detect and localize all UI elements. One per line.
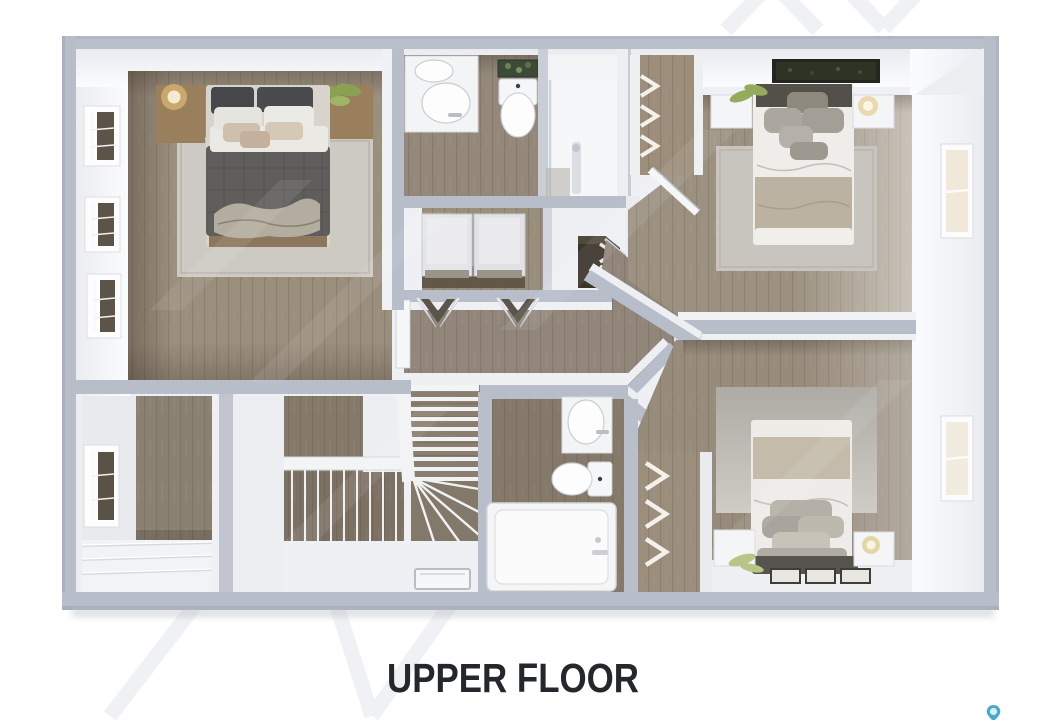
svg-text:UPPER FLOOR: UPPER FLOOR (387, 655, 639, 701)
